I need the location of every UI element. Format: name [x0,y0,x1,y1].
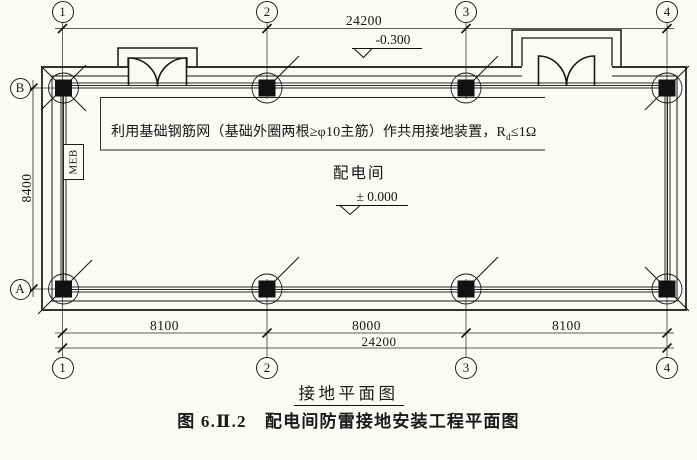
dim-bottom-seg-2: 8000 [327,318,406,334]
grounding-note-main: 利用基础钢筋网（基础外圈两根≥φ10主筋）作共用接地装置，R [111,125,506,140]
column-symbols [38,56,689,314]
figure-title: 图 6.Ⅱ.2 配电间防雷接地安装工程平面图 [0,407,697,432]
meb-terminal: MEB [63,144,84,180]
grid-bubble-bottom-3: 3 [455,357,477,379]
elevation-outdoor-label: -0.300 [364,32,422,48]
dim-bottom-overall: 24200 [350,334,408,350]
grid-bubble-bottom-2: 2 [256,357,278,379]
dim-bottom-seg-1: 8100 [125,318,204,334]
grid-bubble-top-3: 3 [455,1,477,23]
door-left [118,48,197,87]
grid-bubble-bottom-4: 4 [656,357,678,379]
dim-top-overall: 24200 [336,13,392,29]
drawing-sheet: 1 2 3 4 1 2 3 4 B A 24200 8400 8100 8000… [0,0,697,460]
grounding-note: 利用基础钢筋网（基础外圈两根≥φ10主筋）作共用接地装置，Rd≤1Ω [111,121,537,142]
grid-bubble-bottom-1: 1 [52,357,74,379]
plan-subtitle: 接地平面图 [294,380,404,406]
elevation-mark-outdoor [352,49,422,58]
plan-subtitle-wrap: 接地平面图 [0,380,697,406]
grounding-note-tail: ≤1Ω [511,125,537,140]
row-bubble-a: A [10,279,31,300]
grid-bubble-top-1: 1 [52,1,74,23]
meb-label: MEB [68,149,80,174]
dim-left-height: 8400 [19,160,33,216]
room-label: 配电间 [333,161,386,183]
dim-bottom-seg-3b: 8100 [527,318,606,334]
grid-bubble-top-2: 2 [256,1,278,23]
elevation-mark-indoor [336,206,408,215]
door-right [512,30,621,86]
row-bubble-b: B [10,78,31,99]
grounding-conductor [61,83,670,292]
elevation-indoor-label: ± 0.000 [346,189,408,205]
grid-bubble-top-4: 4 [656,1,678,23]
